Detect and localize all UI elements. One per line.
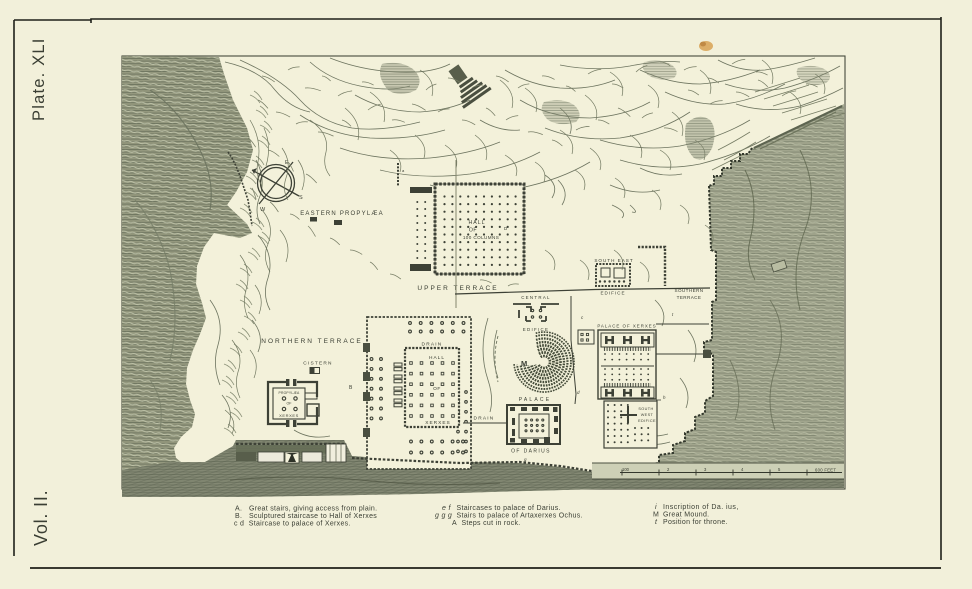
- svg-text:B. Sculptured staircase to H: B. Sculptured staircase to Hall of Xerxe…: [235, 513, 377, 520]
- svg-text:PROPYLÆA: PROPYLÆA: [278, 391, 300, 395]
- svg-text:c d Staircase to palace of Xe: c d Staircase to palace of Xerxes.: [234, 521, 351, 528]
- svg-text:NORTHERN TERRACE: NORTHERN TERRACE: [261, 338, 362, 345]
- svg-text:100: 100: [622, 467, 630, 472]
- svg-text:EASTERN PROPYLÆA: EASTERN PROPYLÆA: [300, 211, 384, 217]
- svg-text:EDIFICE: EDIFICE: [600, 291, 625, 296]
- svg-text:i: i: [655, 504, 657, 511]
- svg-text:WEST: WEST: [641, 413, 654, 417]
- svg-text:HALL: HALL: [469, 220, 486, 226]
- svg-text:A Steps cut in rock.: A Steps cut in rock.: [452, 520, 521, 527]
- svg-text:Staircases to palace of Darius: Staircases to palace of Darius.: [457, 505, 561, 512]
- svg-text:A. Great stairs, giving acce: A. Great stairs, giving access from plai…: [235, 506, 377, 513]
- svg-text:PALACE OF XERXES: PALACE OF XERXES: [597, 324, 656, 329]
- svg-text:OF: OF: [287, 402, 293, 406]
- svg-text:OF: OF: [469, 228, 477, 234]
- svg-text:M: M: [653, 512, 659, 519]
- svg-text:UPPER TERRACE: UPPER TERRACE: [417, 285, 498, 292]
- svg-text:SOUTH: SOUTH: [638, 407, 653, 411]
- svg-text:OF: OF: [433, 386, 441, 392]
- svg-text:Great Mound.: Great Mound.: [663, 512, 709, 519]
- svg-text:g g g: g g g: [435, 513, 452, 520]
- svg-text:PALACE: PALACE: [519, 397, 552, 403]
- svg-text:XERXES: XERXES: [279, 413, 299, 418]
- svg-text:Stairs to palace of Artaxerxes: Stairs to palace of Artaxerxes Ochus.: [457, 513, 583, 520]
- svg-text:e f: e f: [442, 505, 451, 512]
- svg-text:100 COLUMNS: 100 COLUMNS: [463, 235, 499, 240]
- svg-text:EDIFICE: EDIFICE: [638, 419, 656, 423]
- svg-text:Vol. II.: Vol. II.: [31, 490, 51, 546]
- svg-text:Position for throne.: Position for throne.: [663, 519, 728, 526]
- svg-text:OF DARIUS: OF DARIUS: [511, 449, 551, 455]
- svg-text:DRAIN: DRAIN: [422, 342, 443, 348]
- svg-text:SOUTH EAST: SOUTH EAST: [594, 258, 633, 263]
- svg-text:CISTERN: CISTERN: [303, 361, 332, 367]
- svg-text:S: S: [299, 195, 303, 201]
- svg-text:M: M: [521, 359, 527, 368]
- svg-text:W: W: [260, 207, 266, 213]
- svg-text:600 FEET: 600 FEET: [815, 468, 836, 473]
- svg-text:Plate. XLI: Plate. XLI: [30, 37, 48, 121]
- svg-text:DRAIN: DRAIN: [474, 416, 495, 422]
- svg-text:CENTRAL: CENTRAL: [521, 295, 551, 300]
- svg-text:Inscription of Da. ius,: Inscription of Da. ius,: [663, 504, 739, 511]
- svg-text:HALL: HALL: [429, 355, 445, 361]
- svg-text:TERRACE: TERRACE: [677, 295, 702, 300]
- svg-text:XERXES: XERXES: [425, 420, 450, 426]
